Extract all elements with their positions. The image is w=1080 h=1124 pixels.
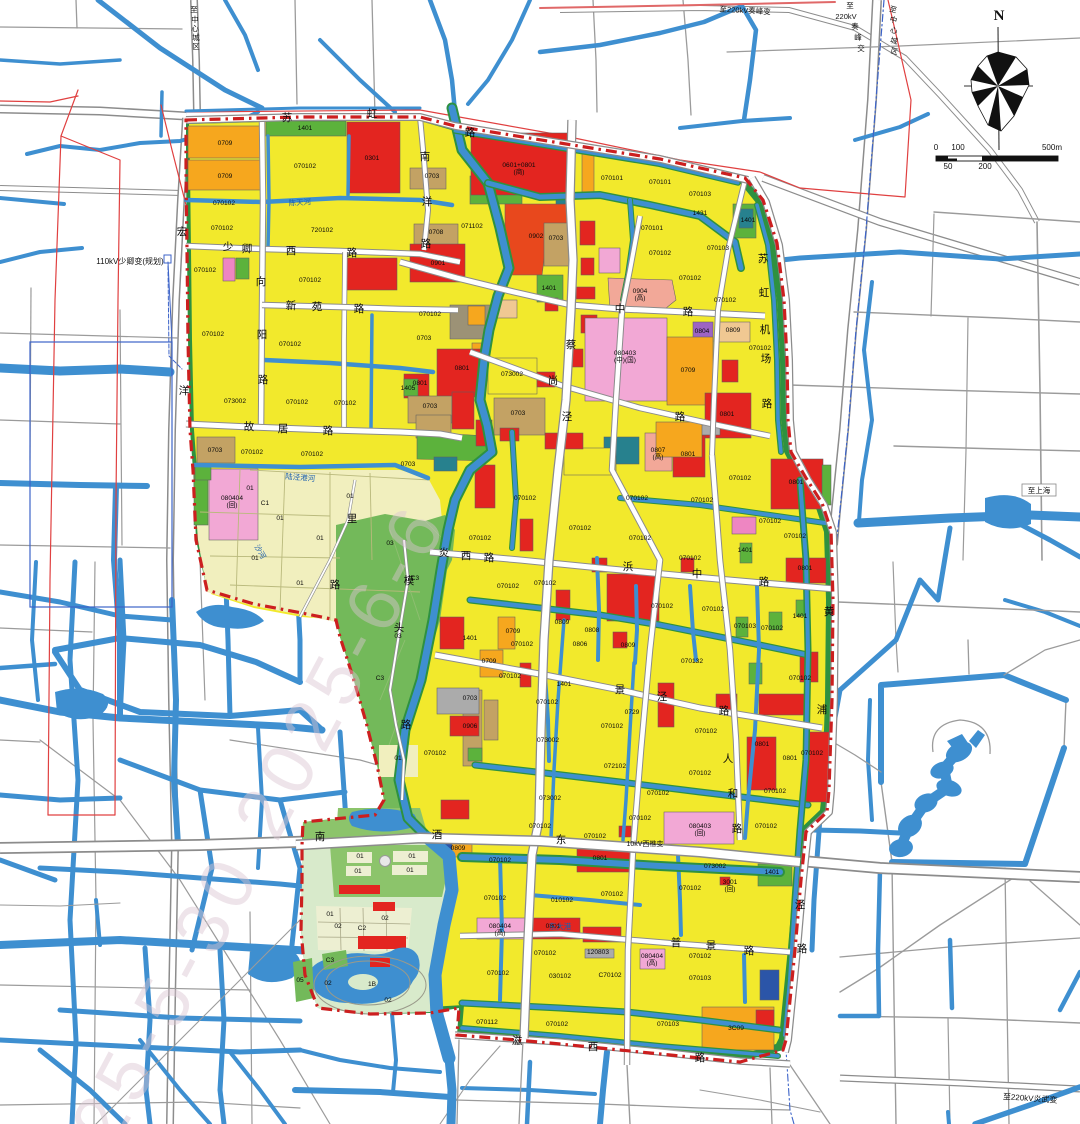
svg-text:0801: 0801 [455, 365, 470, 372]
svg-text:南: 南 [315, 830, 326, 843]
svg-text:070102: 070102 [759, 518, 781, 525]
svg-text:073002: 073002 [501, 371, 523, 378]
svg-text:0904: 0904 [633, 288, 648, 295]
svg-text:向: 向 [256, 275, 267, 288]
svg-text:峰: 峰 [854, 32, 862, 42]
svg-text:070102: 070102 [689, 770, 711, 777]
svg-text:05: 05 [296, 977, 304, 984]
svg-text:0709: 0709 [218, 173, 233, 180]
svg-text:0703: 0703 [417, 335, 432, 342]
svg-text:070102: 070102 [334, 400, 356, 407]
svg-text:070102: 070102 [691, 497, 713, 504]
svg-text:070102: 070102 [749, 345, 771, 352]
svg-text:070102: 070102 [286, 399, 308, 406]
svg-text:0703: 0703 [549, 235, 564, 242]
svg-text:10kV西樵变: 10kV西樵变 [627, 839, 664, 848]
svg-text:路: 路 [465, 126, 476, 139]
svg-text:0729: 0729 [625, 709, 640, 716]
svg-text:交: 交 [857, 43, 865, 53]
svg-text:070102: 070102 [419, 311, 441, 318]
svg-text:至: 至 [190, 5, 198, 14]
svg-text:070102: 070102 [629, 815, 651, 822]
svg-text:3001: 3001 [723, 879, 738, 886]
svg-text:1405: 1405 [401, 385, 416, 392]
svg-text:200: 200 [978, 162, 992, 171]
svg-text:02: 02 [381, 915, 389, 922]
svg-text:蔡: 蔡 [566, 338, 577, 351]
svg-text:0801: 0801 [681, 451, 696, 458]
svg-text:0801: 0801 [798, 565, 813, 572]
svg-text:0809: 0809 [726, 327, 741, 334]
svg-text:0809: 0809 [621, 642, 636, 649]
svg-text:220kV: 220kV [835, 12, 856, 21]
svg-text:070103: 070103 [734, 623, 756, 630]
svg-text:黄: 黄 [824, 605, 835, 618]
svg-text:070102: 070102 [629, 535, 651, 542]
svg-text:0708: 0708 [429, 229, 444, 236]
svg-text:路: 路 [719, 704, 730, 717]
svg-text:01: 01 [356, 853, 364, 860]
svg-text:(中)(国): (中)(国) [614, 355, 636, 364]
svg-text:0709: 0709 [482, 658, 497, 665]
svg-text:0801: 0801 [720, 411, 735, 418]
svg-text:东大港: 东大港 [549, 921, 572, 931]
svg-text:110kV少卿变(规划): 110kV少卿变(规划) [96, 256, 164, 266]
svg-text:0806: 0806 [573, 641, 588, 648]
svg-text:泾: 泾 [795, 898, 806, 911]
svg-text:中: 中 [692, 567, 703, 580]
svg-text:景: 景 [706, 940, 717, 952]
svg-text:西: 西 [286, 245, 297, 257]
svg-text:0901: 0901 [431, 260, 446, 267]
svg-text:071102: 071102 [461, 223, 483, 230]
svg-text:奏: 奏 [851, 21, 859, 31]
svg-text:070102: 070102 [695, 728, 717, 735]
svg-text:080404: 080404 [641, 953, 663, 960]
svg-text:01: 01 [354, 868, 362, 875]
svg-text:070102: 070102 [489, 857, 511, 864]
svg-text:路: 路 [675, 410, 686, 423]
svg-text:070102: 070102 [202, 331, 224, 338]
svg-text:070102: 070102 [689, 953, 711, 960]
svg-text:50: 50 [944, 162, 953, 171]
svg-text:500m: 500m [1042, 143, 1062, 152]
svg-text:少: 少 [223, 241, 234, 253]
svg-text:070102: 070102 [294, 163, 316, 170]
svg-text:1401: 1401 [765, 869, 780, 876]
svg-text:路: 路 [762, 397, 773, 410]
svg-text:0703: 0703 [208, 447, 223, 454]
svg-text:1401: 1401 [741, 217, 756, 224]
svg-text:路: 路 [732, 822, 743, 835]
svg-text:苑: 苑 [312, 300, 323, 313]
svg-text:01: 01 [406, 867, 414, 874]
svg-text:070102: 070102 [499, 673, 521, 680]
svg-text:0301: 0301 [365, 155, 380, 162]
svg-text:070102: 070102 [211, 225, 233, 232]
svg-text:070102: 070102 [601, 723, 623, 730]
svg-text:0703: 0703 [401, 461, 416, 468]
svg-text:1401: 1401 [738, 547, 753, 554]
svg-text:路: 路 [354, 302, 365, 315]
svg-text:070102: 070102 [536, 699, 558, 706]
svg-text:虹: 虹 [367, 108, 378, 120]
svg-text:01: 01 [408, 853, 416, 860]
svg-text:1401: 1401 [298, 125, 313, 132]
svg-text:0809: 0809 [555, 619, 570, 626]
svg-text:0801: 0801 [755, 741, 770, 748]
svg-text:0804: 0804 [695, 328, 710, 335]
svg-text:070102: 070102 [487, 970, 509, 977]
svg-text:路: 路 [744, 944, 755, 957]
svg-text:苏: 苏 [282, 111, 293, 124]
svg-text:0709: 0709 [218, 140, 233, 147]
svg-text:居: 居 [278, 423, 289, 435]
svg-text:070102: 070102 [584, 833, 606, 840]
svg-text:1401: 1401 [463, 635, 478, 642]
svg-text:宏: 宏 [177, 225, 188, 238]
svg-text:0906: 0906 [463, 723, 478, 730]
svg-text:070102: 070102 [484, 895, 506, 902]
svg-text:路: 路 [797, 942, 808, 955]
svg-text:心: 心 [191, 24, 199, 33]
svg-text:080404: 080404 [221, 495, 243, 502]
svg-text:070102: 070102 [679, 555, 701, 562]
svg-text:070103: 070103 [657, 1021, 679, 1028]
svg-text:0703: 0703 [463, 695, 478, 702]
svg-text:070102: 070102 [761, 625, 783, 632]
svg-text:路: 路 [484, 551, 495, 564]
svg-text:070102: 070102 [801, 750, 823, 757]
svg-text:场: 场 [761, 352, 772, 365]
svg-text:070102: 070102 [679, 275, 701, 282]
svg-text:路: 路 [759, 575, 770, 588]
svg-text:070102: 070102 [279, 341, 301, 348]
svg-text:0801: 0801 [783, 755, 798, 762]
svg-text:C3: C3 [326, 957, 335, 964]
svg-text:070102: 070102 [569, 525, 591, 532]
svg-text:070102: 070102 [679, 885, 701, 892]
svg-text:故: 故 [244, 420, 255, 433]
svg-text:070102: 070102 [789, 675, 811, 682]
svg-text:1431: 1431 [693, 210, 708, 217]
svg-text:073002: 073002 [539, 795, 561, 802]
svg-text:070102: 070102 [601, 891, 623, 898]
svg-text:070102: 070102 [213, 200, 235, 207]
svg-text:070102: 070102 [626, 495, 648, 502]
svg-text:070102: 070102 [529, 823, 551, 830]
svg-text:01: 01 [276, 515, 284, 522]
svg-text:070102: 070102 [647, 790, 669, 797]
svg-text:至上海: 至上海 [1028, 485, 1051, 495]
svg-text:0703: 0703 [423, 403, 438, 410]
svg-text:070102: 070102 [534, 950, 556, 957]
svg-text:070102: 070102 [241, 449, 263, 456]
svg-text:070102: 070102 [497, 583, 519, 590]
svg-text:路: 路 [323, 424, 334, 437]
svg-text:洋: 洋 [179, 384, 190, 397]
svg-text:普: 普 [671, 936, 682, 949]
svg-text:陈天河: 陈天河 [288, 196, 311, 207]
svg-text:机: 机 [760, 323, 771, 336]
svg-text:0703: 0703 [511, 410, 526, 417]
svg-text:01: 01 [346, 493, 354, 500]
svg-text:070102: 070102 [511, 641, 533, 648]
svg-text:030102: 030102 [549, 973, 571, 980]
svg-text:C1: C1 [261, 500, 270, 507]
svg-text:路: 路 [421, 237, 432, 250]
svg-text:070102: 070102 [714, 297, 736, 304]
svg-text:1401: 1401 [557, 681, 572, 688]
svg-text:1401: 1401 [793, 613, 808, 620]
svg-text:C70102: C70102 [598, 972, 621, 979]
svg-text:(高): (高) [653, 452, 664, 461]
svg-text:02: 02 [334, 923, 342, 930]
svg-text:0703: 0703 [425, 173, 440, 180]
svg-text:(回): (回) [227, 501, 238, 509]
svg-text:0809: 0809 [451, 845, 466, 852]
svg-text:070103: 070103 [707, 245, 729, 252]
svg-text:01: 01 [394, 755, 402, 762]
svg-text:0: 0 [934, 143, 939, 152]
svg-text:070102: 070102 [301, 451, 323, 458]
svg-text:073002: 073002 [537, 737, 559, 744]
svg-text:(回): (回) [695, 829, 706, 837]
svg-text:新: 新 [286, 299, 297, 312]
svg-text:1401: 1401 [542, 285, 557, 292]
svg-text:070102: 070102 [534, 580, 556, 587]
svg-text:02: 02 [384, 997, 392, 1004]
svg-text:080404: 080404 [489, 923, 511, 930]
svg-text:(回): (回) [725, 885, 736, 893]
svg-text:070102: 070102 [514, 495, 536, 502]
svg-text:中: 中 [615, 302, 626, 315]
svg-text:070102: 070102 [651, 603, 673, 610]
svg-text:泾: 泾 [562, 410, 573, 423]
svg-text:070102: 070102 [649, 250, 671, 257]
svg-text:01: 01 [246, 485, 254, 492]
svg-text:滋: 滋 [512, 1034, 523, 1047]
svg-text:01: 01 [296, 580, 304, 587]
svg-text:浜: 浜 [623, 561, 634, 573]
svg-text:01: 01 [316, 535, 324, 542]
svg-text:010102: 010102 [551, 897, 573, 904]
svg-text:01: 01 [326, 911, 334, 918]
svg-text:酒: 酒 [432, 828, 443, 841]
svg-text:区: 区 [192, 42, 200, 51]
svg-text:尚: 尚 [548, 374, 559, 387]
svg-text:虹: 虹 [759, 287, 770, 299]
svg-text:(商): (商) [514, 167, 525, 176]
svg-text:3C09: 3C09 [728, 1025, 744, 1032]
svg-text:(高): (高) [647, 958, 658, 967]
svg-text:070102: 070102 [546, 1021, 568, 1028]
svg-text:阳: 阳 [257, 329, 268, 341]
svg-text:里: 里 [347, 513, 358, 525]
svg-text:070102: 070102 [702, 606, 724, 613]
svg-text:西: 西 [588, 1041, 599, 1053]
svg-text:070101: 070101 [601, 175, 623, 182]
svg-text:080403: 080403 [614, 350, 636, 357]
svg-text:0801: 0801 [789, 479, 804, 486]
svg-text:070102: 070102 [299, 277, 321, 284]
svg-text:景: 景 [615, 684, 626, 696]
svg-text:路: 路 [258, 373, 269, 386]
svg-text:070102: 070102 [755, 823, 777, 830]
svg-text:100: 100 [951, 143, 965, 152]
svg-text:070102: 070102 [424, 750, 446, 757]
svg-text:0808: 0808 [585, 627, 600, 634]
svg-text:070103: 070103 [689, 975, 711, 982]
svg-text:073002: 073002 [704, 863, 726, 870]
svg-text:至: 至 [846, 1, 854, 10]
svg-text:070101: 070101 [641, 225, 663, 232]
svg-text:072102: 072102 [604, 763, 626, 770]
svg-text:720102: 720102 [311, 227, 333, 234]
svg-text:070103: 070103 [689, 191, 711, 198]
svg-text:人: 人 [723, 753, 734, 765]
svg-text:卿: 卿 [242, 243, 253, 255]
svg-text:070112: 070112 [476, 1019, 498, 1026]
svg-text:1B: 1B [368, 981, 377, 988]
svg-text:浦: 浦 [817, 703, 828, 716]
svg-text:路: 路 [695, 1051, 706, 1064]
svg-text:0709: 0709 [506, 628, 521, 635]
svg-text:02: 02 [324, 980, 332, 987]
svg-text:0801: 0801 [593, 855, 608, 862]
svg-text:东: 东 [556, 833, 567, 846]
svg-text:0902: 0902 [529, 233, 544, 240]
svg-text:中: 中 [191, 14, 199, 24]
svg-text:N: N [994, 8, 1005, 24]
svg-text:070132: 070132 [681, 658, 703, 665]
svg-text:080403: 080403 [689, 823, 711, 830]
svg-text:C2: C2 [358, 925, 367, 932]
svg-text:070102: 070102 [469, 535, 491, 542]
svg-text:洋: 洋 [422, 195, 433, 208]
svg-text:070102: 070102 [729, 475, 751, 482]
svg-text:南: 南 [420, 150, 431, 163]
svg-text:0601+0801: 0601+0801 [502, 162, 536, 169]
svg-text:073002: 073002 [224, 398, 246, 405]
svg-text:路: 路 [347, 246, 358, 259]
svg-text:070102: 070102 [764, 788, 786, 795]
svg-text:070101: 070101 [649, 179, 671, 186]
svg-text:路: 路 [401, 718, 412, 731]
svg-text:070102: 070102 [784, 533, 806, 540]
svg-text:(高): (高) [635, 293, 646, 302]
svg-text:和: 和 [728, 788, 739, 800]
svg-text:苏: 苏 [758, 252, 769, 265]
svg-text:城: 城 [192, 33, 200, 42]
svg-text:120803: 120803 [587, 949, 609, 956]
svg-text:070102: 070102 [194, 267, 216, 274]
svg-text:路: 路 [683, 305, 694, 318]
svg-text:0807: 0807 [651, 447, 666, 454]
svg-text:(高): (高) [495, 928, 506, 937]
svg-text:西: 西 [461, 550, 472, 562]
svg-text:泾: 泾 [657, 690, 668, 703]
svg-text:0709: 0709 [681, 367, 696, 374]
